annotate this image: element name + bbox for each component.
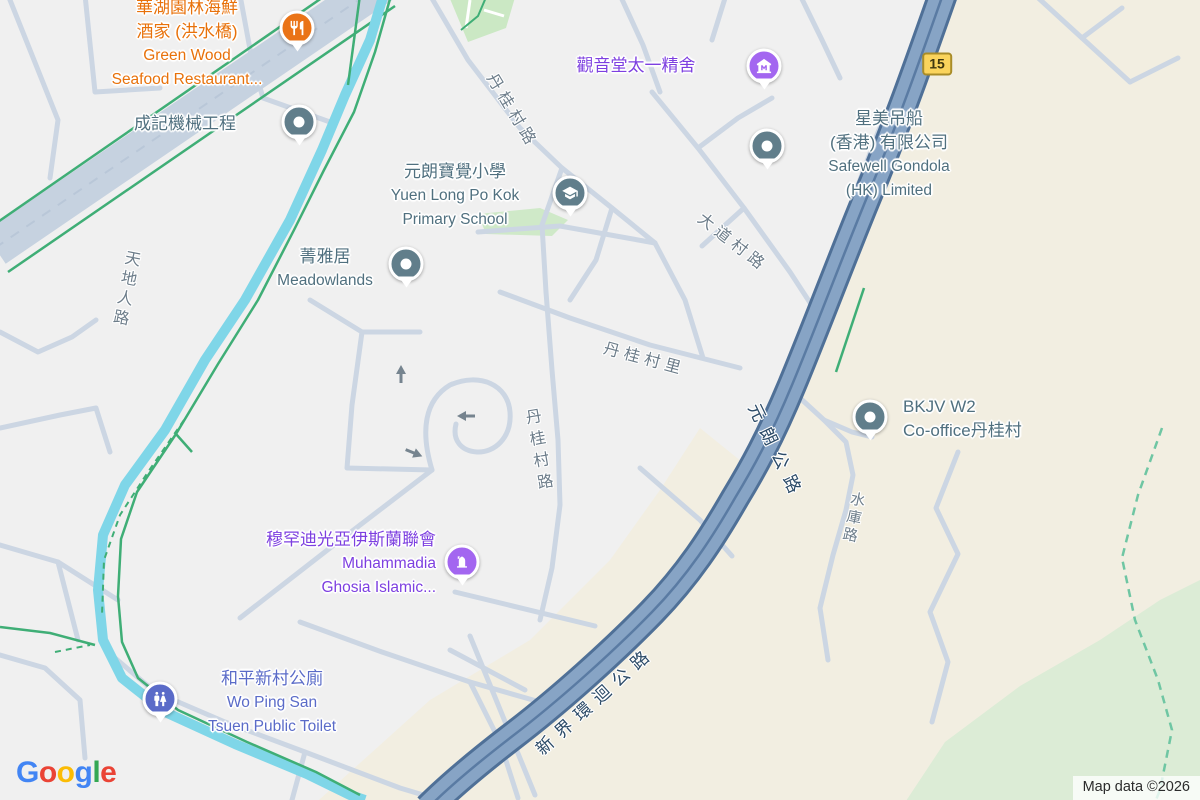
wc-icon bbox=[152, 691, 169, 708]
po-kok-school-label[interactable]: 元朗寶覺小學 Yuen Long Po Kok Primary School bbox=[391, 160, 519, 232]
generic-poi-dot-icon bbox=[762, 141, 773, 152]
bkjv-w2-pin[interactable] bbox=[853, 400, 888, 435]
meadowlands-pin[interactable] bbox=[389, 247, 424, 282]
restaurant-icon bbox=[289, 20, 306, 37]
museum-icon bbox=[756, 58, 773, 75]
generic-poi-dot-icon bbox=[294, 117, 305, 128]
muhammadia-ghosia-pin[interactable] bbox=[445, 545, 480, 580]
safewell-gondola-pin[interactable] bbox=[750, 129, 785, 164]
generic-poi-dot-icon bbox=[865, 412, 876, 423]
po-kok-school-pin[interactable] bbox=[553, 176, 588, 211]
green-wood-seafood-pin[interactable] bbox=[280, 11, 315, 46]
kwun-yum-tong-pin[interactable] bbox=[747, 49, 782, 84]
public-toilet-pin[interactable] bbox=[143, 682, 178, 717]
route-15-shield: 15 bbox=[922, 53, 952, 76]
generic-poi-dot-icon bbox=[401, 259, 412, 270]
safewell-gondola-label[interactable]: 星美吊船 (香港) 有限公司 Safewell Gondola (HK) Lim… bbox=[828, 107, 950, 203]
meadowlands-label[interactable]: 菁雅居 Meadowlands bbox=[277, 245, 373, 293]
worship-icon bbox=[454, 554, 471, 571]
shing-kee-machinery-label[interactable]: 成記機械工程 bbox=[134, 112, 236, 136]
shing-kee-machinery-pin[interactable] bbox=[282, 105, 317, 140]
green-wood-seafood-label[interactable]: 華湖園林海鮮 酒家 (洪水橋) Green Wood Seafood Resta… bbox=[112, 0, 263, 92]
kwun-yum-tong-label[interactable]: 觀音堂太一精舍 bbox=[577, 54, 696, 78]
school-icon bbox=[562, 185, 579, 202]
bkjv-w2-label[interactable]: BKJV W2 Co-office丹桂村 bbox=[903, 395, 1022, 443]
google-logo[interactable]: Google bbox=[16, 756, 116, 790]
map-attribution: Map data ©2026 bbox=[1073, 776, 1200, 800]
map-viewport[interactable]: 丹桂村路 天地人路 大道村路 丹桂村里 丹桂村路 元朗公路 水庫路 新界環迴公路… bbox=[0, 0, 1200, 800]
public-toilet-label[interactable]: 和平新村公廁 Wo Ping San Tsuen Public Toilet bbox=[208, 667, 336, 739]
muhammadia-ghosia-label[interactable]: 穆罕迪光亞伊斯蘭聯會 Muhammadia Ghosia Islamic... bbox=[266, 528, 436, 600]
